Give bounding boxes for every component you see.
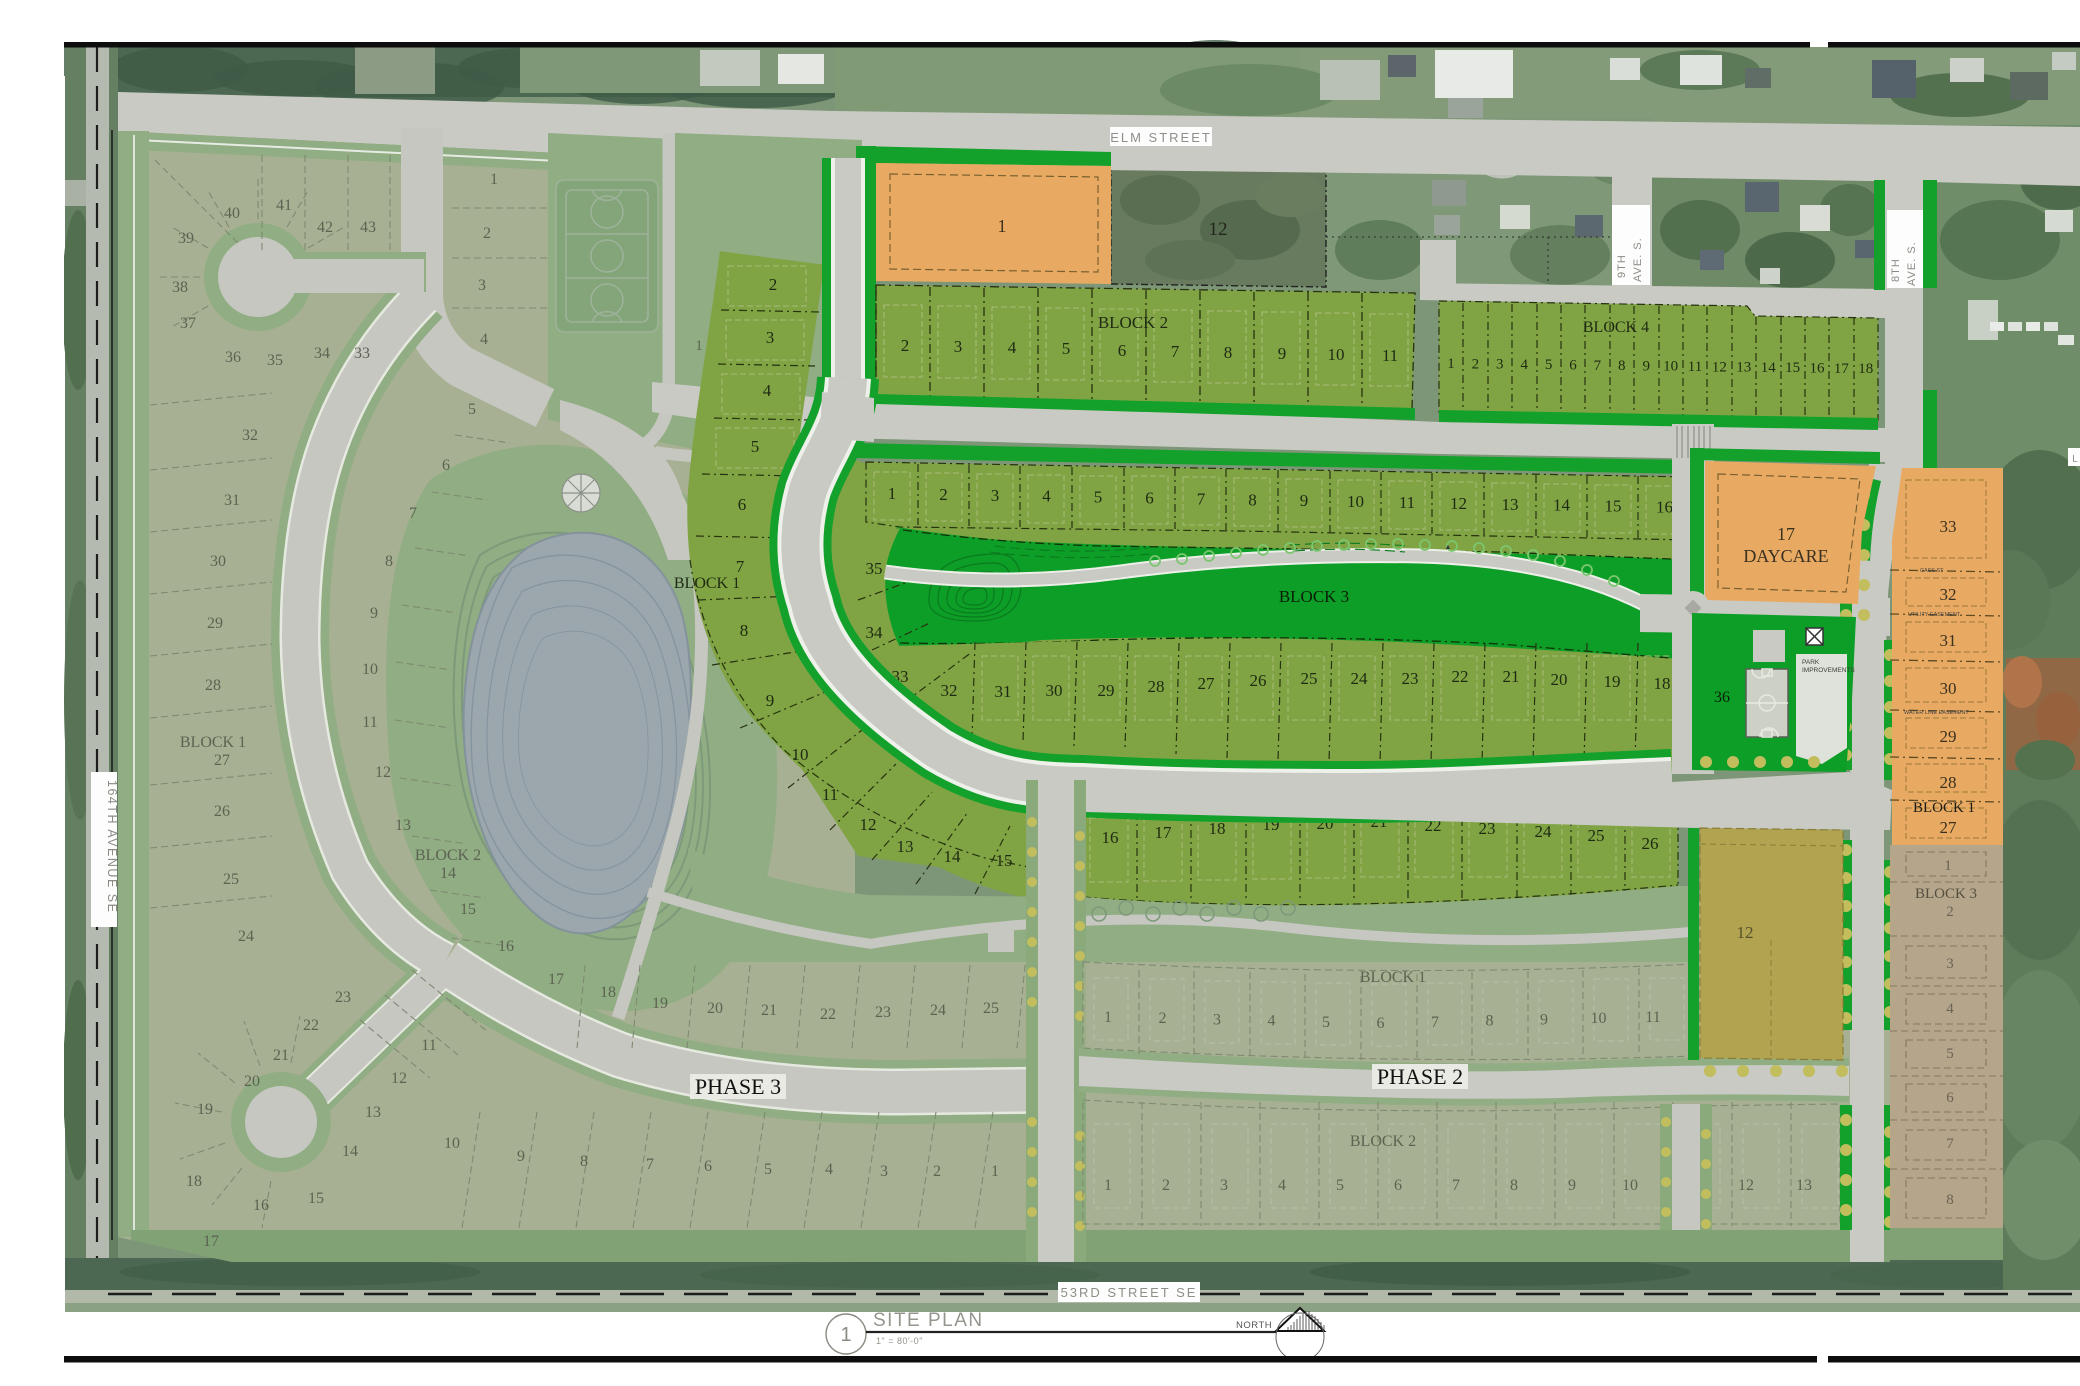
svg-text:8: 8 xyxy=(1946,1192,1954,1208)
svg-text:18: 18 xyxy=(600,984,616,1001)
svg-text:BLOCK 1: BLOCK 1 xyxy=(1913,800,1975,816)
svg-text:BLOCK 4: BLOCK 4 xyxy=(1583,319,1649,336)
svg-text:BLOCK 1: BLOCK 1 xyxy=(180,734,246,751)
svg-text:12: 12 xyxy=(860,815,877,834)
svg-text:23: 23 xyxy=(1402,669,1419,688)
svg-text:IMPROVEMENTS: IMPROVEMENTS xyxy=(1802,667,1855,674)
svg-text:2: 2 xyxy=(901,336,910,355)
svg-text:4: 4 xyxy=(480,331,488,348)
svg-text:15: 15 xyxy=(1785,360,1800,376)
svg-text:2: 2 xyxy=(769,275,778,294)
svg-text:1" = 80'-0": 1" = 80'-0" xyxy=(876,1336,923,1346)
svg-text:28: 28 xyxy=(205,677,221,694)
svg-text:6: 6 xyxy=(1145,489,1154,508)
svg-text:19: 19 xyxy=(1604,672,1621,691)
svg-text:3: 3 xyxy=(478,277,486,294)
svg-text:28: 28 xyxy=(1148,677,1165,696)
svg-text:1: 1 xyxy=(1944,858,1952,874)
svg-text:6: 6 xyxy=(738,495,747,514)
svg-text:32: 32 xyxy=(941,681,958,700)
svg-text:1: 1 xyxy=(1104,1177,1112,1194)
svg-text:4: 4 xyxy=(763,381,772,400)
svg-text:11: 11 xyxy=(421,1037,436,1054)
svg-text:10: 10 xyxy=(1622,1177,1638,1194)
svg-text:17: 17 xyxy=(1834,361,1850,377)
svg-text:30: 30 xyxy=(1046,681,1063,700)
svg-text:29: 29 xyxy=(1940,727,1957,746)
svg-text:7: 7 xyxy=(1431,1014,1439,1031)
svg-text:16: 16 xyxy=(498,938,514,955)
svg-text:9: 9 xyxy=(1568,1177,1576,1194)
svg-text:14: 14 xyxy=(342,1143,358,1160)
svg-text:14: 14 xyxy=(1553,496,1571,515)
svg-text:9: 9 xyxy=(517,1148,525,1165)
svg-text:21: 21 xyxy=(273,1047,289,1064)
svg-text:34: 34 xyxy=(314,345,330,362)
svg-text:23: 23 xyxy=(335,989,351,1006)
svg-text:1: 1 xyxy=(840,1324,851,1346)
svg-text:18: 18 xyxy=(186,1173,202,1190)
svg-text:8TH: 8TH xyxy=(1890,258,1902,282)
svg-text:13: 13 xyxy=(897,837,914,856)
svg-text:6: 6 xyxy=(442,457,450,474)
svg-text:BLOCK 3: BLOCK 3 xyxy=(1915,886,1977,902)
svg-text:2: 2 xyxy=(1472,356,1480,372)
svg-text:BLOCK 2: BLOCK 2 xyxy=(1098,313,1168,332)
svg-text:1: 1 xyxy=(888,484,897,503)
svg-text:10: 10 xyxy=(1663,359,1678,375)
svg-text:33: 33 xyxy=(354,345,370,362)
svg-text:38: 38 xyxy=(172,279,188,296)
svg-text:4: 4 xyxy=(1278,1177,1286,1194)
svg-text:8: 8 xyxy=(1248,490,1257,509)
svg-text:17: 17 xyxy=(1155,823,1173,842)
svg-text:13: 13 xyxy=(365,1104,381,1121)
svg-text:PHASE 2: PHASE 2 xyxy=(1377,1064,1463,1089)
svg-text:5: 5 xyxy=(1094,488,1103,507)
svg-text:26: 26 xyxy=(1642,834,1659,853)
svg-text:40: 40 xyxy=(224,205,240,222)
svg-text:25: 25 xyxy=(983,1000,999,1017)
svg-text:3: 3 xyxy=(991,486,1000,505)
svg-text:10: 10 xyxy=(1347,492,1364,511)
svg-text:11: 11 xyxy=(1399,493,1415,512)
svg-text:11: 11 xyxy=(1688,359,1702,375)
svg-text:AVE. S.: AVE. S. xyxy=(1632,237,1644,282)
svg-text:1: 1 xyxy=(1104,1009,1112,1026)
svg-text:BLOCK 2: BLOCK 2 xyxy=(1350,1133,1416,1150)
svg-text:4: 4 xyxy=(1946,1001,1954,1017)
svg-text:11: 11 xyxy=(1382,346,1398,365)
svg-text:1: 1 xyxy=(991,1163,999,1180)
svg-text:22: 22 xyxy=(820,1006,836,1023)
svg-text:12: 12 xyxy=(391,1070,407,1087)
svg-text:2: 2 xyxy=(939,485,948,504)
svg-text:9TH: 9TH xyxy=(1616,254,1628,278)
svg-text:53RD STREET SE: 53RD STREET SE xyxy=(1061,1285,1198,1300)
svg-text:16: 16 xyxy=(1810,361,1826,377)
svg-text:22: 22 xyxy=(303,1017,319,1034)
svg-text:19: 19 xyxy=(652,995,668,1012)
svg-text:34: 34 xyxy=(866,623,884,642)
svg-text:31: 31 xyxy=(995,682,1012,701)
svg-text:24: 24 xyxy=(1351,669,1369,688)
svg-text:12: 12 xyxy=(1712,359,1727,375)
svg-text:22: 22 xyxy=(1452,667,1469,686)
svg-text:3: 3 xyxy=(954,337,963,356)
svg-text:13: 13 xyxy=(1796,1177,1812,1194)
svg-text:23: 23 xyxy=(875,1004,891,1021)
svg-text:15: 15 xyxy=(996,851,1013,870)
svg-text:13: 13 xyxy=(1736,360,1751,376)
svg-text:10: 10 xyxy=(362,661,378,678)
svg-text:13: 13 xyxy=(395,817,411,834)
svg-text:16: 16 xyxy=(253,1197,269,1214)
svg-text:25: 25 xyxy=(223,871,239,888)
svg-text:12: 12 xyxy=(1737,923,1754,942)
svg-text:6: 6 xyxy=(1946,1090,1954,1106)
svg-text:3: 3 xyxy=(1496,357,1504,373)
svg-text:3: 3 xyxy=(1220,1177,1228,1194)
svg-text:1: 1 xyxy=(998,216,1007,236)
svg-text:41: 41 xyxy=(276,197,292,214)
svg-text:25: 25 xyxy=(1301,669,1318,688)
svg-text:37: 37 xyxy=(180,315,196,332)
svg-text:32: 32 xyxy=(1940,585,1957,604)
svg-text:27: 27 xyxy=(1940,818,1958,837)
svg-text:7: 7 xyxy=(1594,358,1602,374)
svg-text:5: 5 xyxy=(1336,1177,1344,1194)
svg-text:3: 3 xyxy=(1213,1011,1221,1028)
svg-text:SITE PLAN: SITE PLAN xyxy=(873,1310,984,1331)
svg-text:36: 36 xyxy=(225,349,241,366)
svg-text:42: 42 xyxy=(317,219,333,236)
svg-text:9: 9 xyxy=(1300,491,1309,510)
svg-text:9: 9 xyxy=(766,691,775,710)
svg-text:ELM STREET: ELM STREET xyxy=(1110,130,1212,145)
svg-text:35: 35 xyxy=(866,559,883,578)
svg-text:26: 26 xyxy=(1250,671,1267,690)
svg-text:20: 20 xyxy=(244,1073,260,1090)
svg-text:16: 16 xyxy=(1102,828,1119,847)
svg-text:4: 4 xyxy=(825,1161,833,1178)
svg-text:8: 8 xyxy=(1618,358,1626,374)
svg-text:27: 27 xyxy=(1198,674,1216,693)
svg-text:7: 7 xyxy=(646,1156,654,1173)
svg-text:1: 1 xyxy=(695,338,703,354)
svg-text:PHASE 3: PHASE 3 xyxy=(695,1074,781,1099)
svg-text:31: 31 xyxy=(224,492,240,509)
svg-text:32: 32 xyxy=(242,427,258,444)
svg-text:6: 6 xyxy=(704,1158,712,1175)
svg-text:12: 12 xyxy=(1450,494,1467,513)
svg-text:17: 17 xyxy=(203,1233,219,1250)
svg-text:BLOCK 3: BLOCK 3 xyxy=(1279,587,1349,606)
svg-text:164TH AVENUE SE: 164TH AVENUE SE xyxy=(105,780,119,913)
svg-text:5: 5 xyxy=(764,1161,772,1178)
svg-text:13: 13 xyxy=(1502,495,1519,514)
svg-text:2: 2 xyxy=(1946,904,1954,920)
svg-text:5: 5 xyxy=(1545,357,1553,373)
svg-text:28: 28 xyxy=(1940,773,1957,792)
svg-text:5: 5 xyxy=(468,401,476,418)
svg-text:35: 35 xyxy=(267,352,283,369)
svg-text:43: 43 xyxy=(360,219,376,236)
svg-text:11: 11 xyxy=(822,785,838,804)
svg-text:20: 20 xyxy=(1551,670,1568,689)
svg-text:3: 3 xyxy=(1946,956,1954,972)
svg-text:12: 12 xyxy=(1209,219,1228,240)
svg-text:1: 1 xyxy=(490,171,498,188)
svg-text:18: 18 xyxy=(1858,361,1873,377)
svg-text:9: 9 xyxy=(1540,1011,1548,1028)
svg-text:10: 10 xyxy=(444,1135,460,1152)
svg-text:CASS ST: CASS ST xyxy=(1920,568,1944,574)
svg-text:8: 8 xyxy=(1510,1177,1518,1194)
svg-text:PARK: PARK xyxy=(1802,659,1820,666)
svg-text:33: 33 xyxy=(1940,517,1957,536)
svg-text:10: 10 xyxy=(1591,1010,1607,1027)
svg-text:30: 30 xyxy=(1940,679,1957,698)
svg-text:2: 2 xyxy=(1162,1177,1170,1194)
svg-text:UTILITY EASEMENT: UTILITY EASEMENT xyxy=(1908,612,1961,618)
svg-text:5: 5 xyxy=(1062,339,1071,358)
svg-text:20: 20 xyxy=(707,1000,723,1017)
svg-text:17: 17 xyxy=(1777,524,1795,544)
svg-text:8: 8 xyxy=(740,621,749,640)
svg-text:14: 14 xyxy=(1761,360,1777,376)
svg-text:4: 4 xyxy=(1520,357,1528,373)
svg-text:21: 21 xyxy=(1503,667,1520,686)
svg-text:BLOCK 1: BLOCK 1 xyxy=(1360,969,1426,986)
svg-text:18: 18 xyxy=(1654,674,1671,693)
svg-text:6: 6 xyxy=(1394,1177,1402,1194)
svg-text:12: 12 xyxy=(375,764,391,781)
svg-text:15: 15 xyxy=(460,901,476,918)
svg-text:6: 6 xyxy=(1569,358,1577,374)
svg-text:4: 4 xyxy=(1008,338,1017,357)
svg-text:29: 29 xyxy=(1098,681,1115,700)
svg-text:BLOCK 2: BLOCK 2 xyxy=(415,847,481,864)
svg-text:24: 24 xyxy=(930,1002,946,1019)
svg-text:5: 5 xyxy=(751,437,760,456)
svg-text:DAYCARE: DAYCARE xyxy=(1743,546,1828,566)
svg-text:8: 8 xyxy=(580,1153,588,1170)
svg-text:5: 5 xyxy=(1946,1046,1954,1062)
svg-text:AVE. S.: AVE. S. xyxy=(1906,241,1918,286)
svg-text:2: 2 xyxy=(1159,1010,1167,1027)
svg-text:7: 7 xyxy=(1946,1136,1954,1152)
svg-text:6: 6 xyxy=(1377,1015,1385,1032)
svg-text:19: 19 xyxy=(197,1101,213,1118)
svg-text:25: 25 xyxy=(1588,826,1605,845)
svg-text:17: 17 xyxy=(548,971,564,988)
svg-text:7: 7 xyxy=(409,505,417,522)
svg-text:1: 1 xyxy=(1447,356,1455,372)
svg-text:9: 9 xyxy=(1278,344,1287,363)
svg-text:31: 31 xyxy=(1940,631,1957,650)
svg-text:10: 10 xyxy=(792,745,809,764)
svg-text:8: 8 xyxy=(385,553,393,570)
svg-text:2: 2 xyxy=(483,225,491,242)
svg-text:14: 14 xyxy=(440,865,456,882)
svg-text:7: 7 xyxy=(1452,1177,1460,1194)
svg-text:8: 8 xyxy=(1486,1013,1494,1030)
svg-text:4: 4 xyxy=(1268,1013,1276,1030)
svg-text:39: 39 xyxy=(178,230,194,247)
svg-text:24: 24 xyxy=(1535,822,1553,841)
svg-text:3: 3 xyxy=(766,328,775,347)
svg-text:30: 30 xyxy=(210,553,226,570)
svg-text:12: 12 xyxy=(1738,1177,1754,1194)
svg-text:2: 2 xyxy=(933,1163,941,1180)
svg-text:7: 7 xyxy=(1171,342,1180,361)
svg-text:WATER LINE EASEMENT: WATER LINE EASEMENT xyxy=(1904,710,1969,716)
svg-text:10: 10 xyxy=(1328,345,1345,364)
svg-text:5: 5 xyxy=(1322,1014,1330,1031)
svg-text:9: 9 xyxy=(370,605,378,622)
svg-text:3: 3 xyxy=(880,1163,888,1180)
svg-text:▲: ▲ xyxy=(1445,543,1452,551)
svg-text:16: 16 xyxy=(1656,498,1673,517)
svg-text:7: 7 xyxy=(1197,489,1206,508)
svg-text:27: 27 xyxy=(214,752,230,769)
svg-text:26: 26 xyxy=(214,803,230,820)
svg-text:24: 24 xyxy=(238,928,254,945)
svg-text:L: L xyxy=(2072,454,2078,465)
svg-text:21: 21 xyxy=(761,1002,777,1019)
svg-text:14: 14 xyxy=(944,847,962,866)
svg-text:11: 11 xyxy=(362,714,377,731)
svg-text:9: 9 xyxy=(1642,358,1650,374)
svg-text:11: 11 xyxy=(1645,1009,1660,1026)
svg-text:8: 8 xyxy=(1224,343,1233,362)
svg-text:15: 15 xyxy=(308,1190,324,1207)
svg-text:6: 6 xyxy=(1118,341,1127,360)
svg-text:BLOCK 1: BLOCK 1 xyxy=(674,575,740,592)
svg-text:NORTH: NORTH xyxy=(1236,1320,1272,1331)
svg-text:36: 36 xyxy=(1714,689,1730,706)
svg-text:29: 29 xyxy=(207,615,223,632)
svg-text:15: 15 xyxy=(1605,497,1622,516)
svg-text:7: 7 xyxy=(736,557,745,576)
svg-text:4: 4 xyxy=(1042,487,1051,506)
